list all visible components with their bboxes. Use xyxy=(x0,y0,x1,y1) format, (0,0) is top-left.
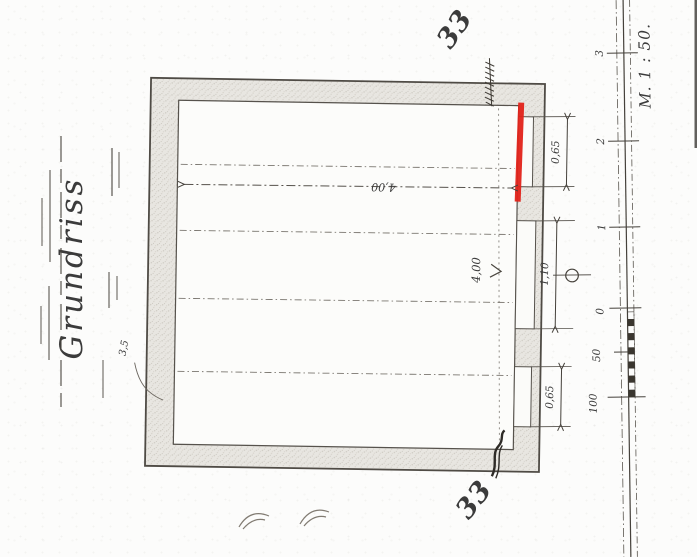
floor-plan: 4,00 4,00 0,65 1,10 0,65 xyxy=(116,52,595,479)
scale-bar-line xyxy=(623,0,631,557)
floor-plan-canvas: 4,00 4,00 0,65 1,10 0,65 xyxy=(0,0,697,557)
pencil-arc-marks xyxy=(239,510,329,529)
scale-label: M. 1 : 50. xyxy=(635,23,654,110)
scale-tick-label: 100 xyxy=(588,393,600,414)
dim-label-niche-bottom: 0,65 xyxy=(544,385,556,409)
dim-label-room-height: 4,00 xyxy=(469,257,483,284)
dim-line-niche-bottom xyxy=(561,369,562,424)
red-highlight-line xyxy=(518,103,522,202)
pencil-arc-mark-left xyxy=(243,519,265,529)
scale-bar: 3 2 1 0 50 100 M. 1 : 50. xyxy=(582,0,661,557)
scale-tick xyxy=(608,397,646,398)
wall-niche-bottom xyxy=(514,367,532,427)
scale-tick-label: 2 xyxy=(595,138,607,146)
title-block: Grundriss xyxy=(41,136,119,414)
axis-line xyxy=(553,274,591,276)
handwritten-mark-top-right: 33 xyxy=(431,4,479,54)
dim-label-niche-top: 0,65 xyxy=(550,140,562,164)
wall-note-label: 3,5 xyxy=(117,339,131,357)
scale-bar-line xyxy=(616,0,624,557)
pencil-arc-mark-right xyxy=(304,516,326,526)
scanned-drawing-page: 4,00 4,00 0,65 1,10 0,65 xyxy=(0,0,697,557)
dim-label-room-width: 4,00 xyxy=(371,180,397,193)
dim-line-niche-top xyxy=(566,119,567,184)
scale-tick-label: 3 xyxy=(594,50,606,57)
scale-tick-label: 0 xyxy=(594,308,606,315)
dim-label-niche-middle: 1,10 xyxy=(539,262,551,286)
scale-checker-band xyxy=(627,312,635,397)
plan-room-interior xyxy=(173,100,518,449)
wall-niche-middle xyxy=(515,221,536,329)
circle-mark xyxy=(566,269,579,282)
handwritten-mark-bottom-right: 33 xyxy=(450,475,499,525)
drawing-title: Grundriss xyxy=(54,177,90,360)
scale-tick-label: 50 xyxy=(591,348,603,362)
scale-tick-label: 1 xyxy=(596,224,608,231)
